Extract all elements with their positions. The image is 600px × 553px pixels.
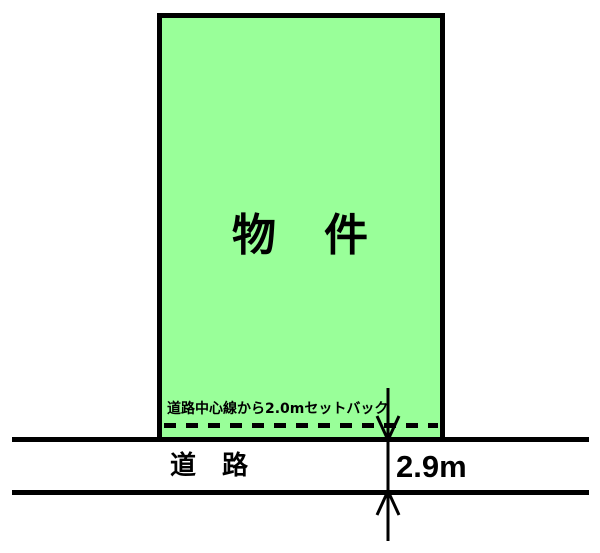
road-label: 道 路: [170, 452, 248, 480]
property-area: 物 件 道路中心線から2.0mセットバック: [157, 13, 445, 437]
site-plan-diagram: 物 件 道路中心線から2.0mセットバック 道 路 2.9m: [0, 0, 600, 553]
setback-note-label: 道路中心線から2.0mセットバック: [167, 401, 388, 417]
road-edge-line-bottom: [12, 490, 589, 495]
road-edge-line-top: [12, 437, 589, 442]
road-width-label: 2.9m: [396, 452, 467, 482]
property-label: 物 件: [162, 214, 440, 258]
road-width-dimension-arrow: [372, 386, 404, 544]
